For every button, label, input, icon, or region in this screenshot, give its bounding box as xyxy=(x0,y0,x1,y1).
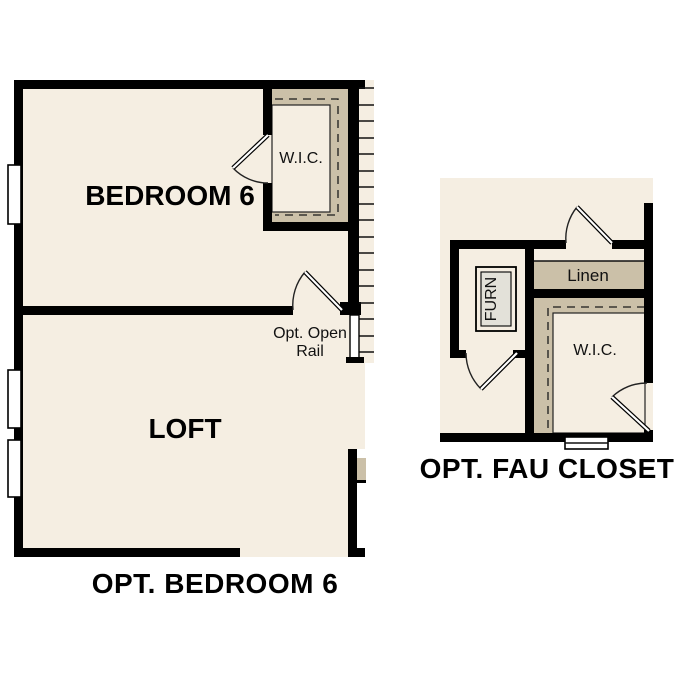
left-plan-caption: OPT. BEDROOM 6 xyxy=(92,568,339,599)
adjacent-chase-line xyxy=(357,480,366,483)
corner-wall-bottom-stub xyxy=(348,548,365,557)
furn-label: FURN xyxy=(483,277,500,321)
left-plan: BEDROOM 6 LOFT W.I.C. Opt. Open Rail OPT… xyxy=(8,80,374,599)
wall-right-lower xyxy=(644,430,653,442)
adjacent-chase xyxy=(357,449,366,548)
wall-top xyxy=(14,80,365,89)
wall-right-upper xyxy=(644,203,653,383)
bedroom6-label: BEDROOM 6 xyxy=(85,180,255,211)
center-wall-vertical xyxy=(525,240,534,433)
wic-right-label: W.I.C. xyxy=(573,342,617,359)
opt-open-rail-label-line2: Rail xyxy=(296,343,324,360)
floorplan-canvas: BEDROOM 6 LOFT W.I.C. Opt. Open Rail OPT… xyxy=(0,0,687,687)
wall-bottom xyxy=(14,548,240,557)
loft-label: LOFT xyxy=(148,413,221,444)
wall-bottom-right-plan xyxy=(440,433,653,442)
wic-left-wall-upper xyxy=(263,89,272,135)
wic-left-label: W.I.C. xyxy=(279,150,323,167)
linen-label: Linen xyxy=(567,266,609,285)
wic-left-wall-bottom xyxy=(263,222,357,231)
wall-right-stairs xyxy=(348,80,359,310)
adjacent-chase-band xyxy=(357,458,366,480)
corner-wall-vertical xyxy=(348,449,357,557)
window-symbol-loft-upper xyxy=(8,370,21,428)
floorplan-svg: BEDROOM 6 LOFT W.I.C. Opt. Open Rail OPT… xyxy=(0,0,687,687)
right-plan: FURN Linen W.I.C. OPT. FAU CLOSET xyxy=(420,178,675,484)
furn-closet-wall-left xyxy=(450,240,459,358)
linen-bottom-wall xyxy=(533,289,645,298)
vent-symbol xyxy=(565,437,608,449)
wic-right-band-left xyxy=(533,297,553,433)
wall-divider-bedroom-loft xyxy=(14,306,293,315)
furn-door-left-stub xyxy=(450,350,466,358)
furn-closet-wall-top xyxy=(450,240,533,249)
window-symbol-bedroom xyxy=(8,165,21,224)
right-plan-caption: OPT. FAU CLOSET xyxy=(420,453,675,484)
opt-open-rail-label-line1: Opt. Open xyxy=(273,325,347,342)
top-wall-right-of-door xyxy=(612,240,645,249)
window-symbol-loft-lower xyxy=(8,440,21,497)
top-wall-left-of-door xyxy=(533,240,566,249)
open-rail-end-cap xyxy=(346,357,364,363)
open-rail-symbol xyxy=(350,315,359,359)
